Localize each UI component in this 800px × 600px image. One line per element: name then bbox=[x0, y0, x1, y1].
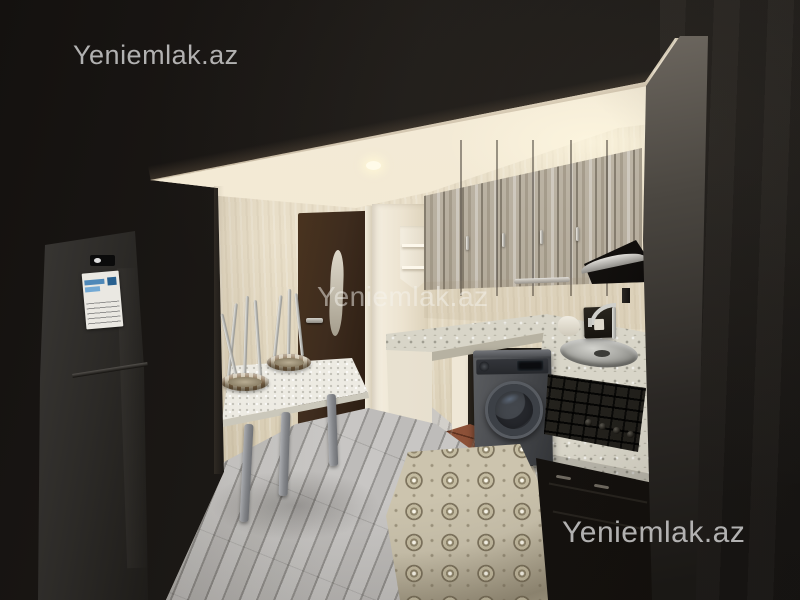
energy-label-rating-box bbox=[107, 277, 117, 286]
energy-label-text-lines bbox=[86, 301, 121, 326]
watermark-top-left: Yeniemlak.az bbox=[73, 40, 239, 71]
watermark-bottom-right: Yeniemlak.az bbox=[562, 516, 745, 550]
energy-label bbox=[82, 270, 124, 329]
kitchen-listing-photo: Yeniemlak.az Yeniemlak.az Yeniemlak.az bbox=[0, 0, 800, 600]
energy-label-bar bbox=[84, 279, 104, 286]
refrigerator-logo-badge bbox=[90, 255, 115, 266]
doorframe-left-pillar-edge bbox=[214, 186, 224, 474]
refrigerator bbox=[38, 228, 148, 600]
watermark-center: Yeniemlak.az bbox=[317, 281, 489, 313]
refrigerator-logo bbox=[94, 258, 101, 263]
energy-label-bar bbox=[85, 286, 100, 292]
